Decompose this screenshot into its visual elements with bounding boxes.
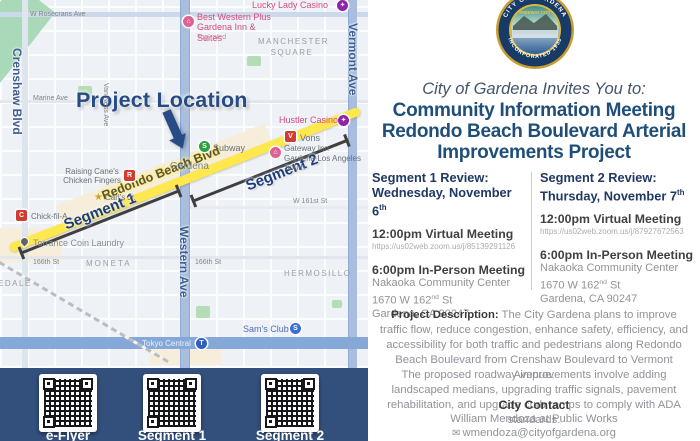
icon-glyph: ✦ xyxy=(341,117,347,124)
qr-finder-icon xyxy=(81,378,93,390)
qr-finder-icon xyxy=(147,416,159,428)
inperson-meeting-heading: 6:00pm In-Person Meeting xyxy=(540,248,696,262)
address-tail: St xyxy=(607,279,620,291)
street-label: 166th St xyxy=(195,259,221,266)
icon-glyph: S xyxy=(293,325,298,332)
street-label: Marine Ave xyxy=(33,95,68,102)
vons-icon: V xyxy=(285,131,296,142)
virtual-meeting-heading: 12:00pm Virtual Meeting xyxy=(540,212,696,226)
column-divider xyxy=(531,172,532,290)
road-161st xyxy=(190,206,368,209)
qr-finder-icon xyxy=(265,378,277,390)
street-label-crenshaw: Crenshaw Blvd xyxy=(10,48,24,135)
segment1-review-heading: Segment 1 Review: Wednesday, November 6t… xyxy=(372,170,528,218)
poi-sams-club: Sam's Club xyxy=(243,324,289,334)
subway-icon: S xyxy=(199,141,210,152)
zoom-link[interactable]: https://us02web.zoom.us/j/85139291126 xyxy=(372,242,528,251)
address-tail: St xyxy=(439,294,452,306)
flyer-title: Community Information Meeting Redondo Be… xyxy=(368,100,700,163)
poi-raising-canes: Raising Cane's Chicken Fingers xyxy=(62,167,122,185)
date-ordinal: th xyxy=(677,188,684,197)
segment2-review-heading: Segment 2 Review: Thursday, November 7th xyxy=(540,170,696,203)
address-ordinal: nd xyxy=(599,279,607,286)
area-label-hermosillo: HERMOSILLO xyxy=(284,269,351,280)
review-label: Segment 1 Review: xyxy=(372,170,489,185)
contact-email-line: ✉wmendoza@cityofgardena.org xyxy=(368,427,700,440)
poi-carls-jr: Carl's Jr. xyxy=(105,193,136,202)
sams-club-icon: S xyxy=(290,323,301,334)
title-line-1: Community Information Meeting xyxy=(368,100,700,121)
poi-lucky-lady-casino: Lucky Lady Casino xyxy=(252,0,328,10)
project-location-map: Redondo Beach Blvd Segment 1 Segment 2 P… xyxy=(0,0,368,368)
street-label: W 161st St xyxy=(293,198,327,205)
qr-code-eflyer xyxy=(39,374,97,432)
poi-vons: Vons xyxy=(300,133,320,143)
qr-finder-icon xyxy=(303,378,315,390)
park-area xyxy=(332,300,342,308)
contact-heading: City Contact xyxy=(368,398,700,412)
address-main: 1670 W 162 xyxy=(372,294,431,306)
venue-address: 1670 W 162nd St xyxy=(540,276,696,293)
review-label: Segment 2 Review: xyxy=(540,170,657,185)
flyer-text-panel: FREEWAY CITY CITY OF GARDENA INCORPORATE… xyxy=(368,0,700,441)
qr-finder-icon xyxy=(265,416,277,428)
hotel-icon: ⌂ xyxy=(183,16,194,27)
address-ordinal: nd xyxy=(431,294,439,301)
casino-icon: ✦ xyxy=(337,0,348,11)
street-label: 166th St xyxy=(33,259,59,266)
hotel-icon: ⌂ xyxy=(270,147,281,158)
street-label-vermont: Vermont Ave xyxy=(346,23,360,95)
street-label: W Rosecrans Ave xyxy=(30,11,86,18)
icon-glyph: C xyxy=(19,212,24,219)
inperson-meeting-heading: 6:00pm In-Person Meeting xyxy=(372,263,528,277)
qr-finder-icon xyxy=(147,378,159,390)
icon-glyph: ⌂ xyxy=(273,149,277,156)
address-main: 1670 W 162 xyxy=(540,279,599,291)
qr-label-eflyer: e-Flyer xyxy=(18,428,118,441)
title-line-3: Improvements Project xyxy=(368,142,700,163)
review-date: Thursday, November 7 xyxy=(540,188,677,203)
area-label-edale: EDALE xyxy=(0,279,32,290)
date-ordinal: th xyxy=(379,203,386,212)
invite-line: City of Gardena Invites You to: xyxy=(368,80,700,99)
city-contact-block: City Contact William Mendoza at Public W… xyxy=(368,398,700,441)
poi-torrance-coin-laundry: Torrance Coin Laundry xyxy=(33,238,124,248)
city-of-gardena-seal: FREEWAY CITY CITY OF GARDENA INCORPORATE… xyxy=(495,0,575,70)
icon-glyph: T xyxy=(199,340,203,347)
icon-glyph: R xyxy=(127,172,132,179)
segment2-session: Segment 2 Review: Thursday, November 7th… xyxy=(540,170,696,306)
poi-top-rated: Top rated xyxy=(197,34,226,41)
contact-email[interactable]: wmendoza@cityofgardena.org xyxy=(463,427,616,439)
icon-glyph: S xyxy=(202,143,207,150)
project-description-label: Project Description: xyxy=(391,309,498,321)
tokyo-central-icon: T xyxy=(196,338,207,349)
poi-subway: Subway xyxy=(213,143,245,153)
review-date: Wednesday, November 6 xyxy=(372,185,512,218)
envelope-icon: ✉ xyxy=(452,428,460,439)
icon-glyph: ✦ xyxy=(340,2,346,9)
contact-person: William Mendoza at Public Works xyxy=(368,413,700,426)
park-area xyxy=(196,306,210,318)
qr-band: e-Flyer Segment 1 Segment 2 xyxy=(0,368,368,441)
qr-finder-icon xyxy=(185,378,197,390)
venue-name: Nakaoka Community Center xyxy=(540,262,696,276)
poi-gateway-inn: Gateway Inn Gardena Los Angeles South xyxy=(284,144,362,173)
flyer-page: Redondo Beach Blvd Segment 1 Segment 2 P… xyxy=(0,0,700,441)
casino-icon: ✦ xyxy=(338,115,349,126)
seal-banner-text: FREEWAY CITY xyxy=(520,10,551,15)
qr-label-segment2: Segment 2 xyxy=(240,428,340,441)
raising-canes-icon: R xyxy=(124,170,135,181)
venue-name: Nakaoka Community Center xyxy=(372,277,528,291)
area-label-moneta: MONETA xyxy=(86,259,132,270)
poi-chick-fil-a: Chick-fil-A xyxy=(31,212,67,221)
poi-tokyo-central: Tokyo Central xyxy=(142,339,191,348)
segment1-session: Segment 1 Review: Wednesday, November 6t… xyxy=(372,170,528,321)
qr-label-segment1: Segment 1 xyxy=(122,428,222,441)
qr-finder-icon xyxy=(43,378,55,390)
icon-glyph: ⌂ xyxy=(186,18,190,25)
virtual-meeting-heading: 12:00pm Virtual Meeting xyxy=(372,227,528,241)
venue-city: Gardena, CA 90247 xyxy=(540,293,696,307)
star-icon: ★ xyxy=(94,192,103,203)
qr-finder-icon xyxy=(43,416,55,428)
title-line-2: Redondo Beach Boulevard Arterial xyxy=(368,121,700,142)
qr-code-segment2 xyxy=(261,374,319,432)
poi-hustler-casino: Hustler Casino xyxy=(279,115,338,125)
qr-code-segment1 xyxy=(143,374,201,432)
chick-fil-a-icon: C xyxy=(16,210,27,221)
city-label-gardena: Gardena xyxy=(170,161,209,172)
zoom-link[interactable]: https://us02web.zoom.us/j/87927672563 xyxy=(540,227,696,236)
venue-address: 1670 W 162nd St xyxy=(372,291,528,308)
street-label-vanness: Van Ness Ave xyxy=(102,83,109,126)
street-label-western: Western Ave xyxy=(177,226,191,298)
icon-glyph: V xyxy=(288,133,293,140)
